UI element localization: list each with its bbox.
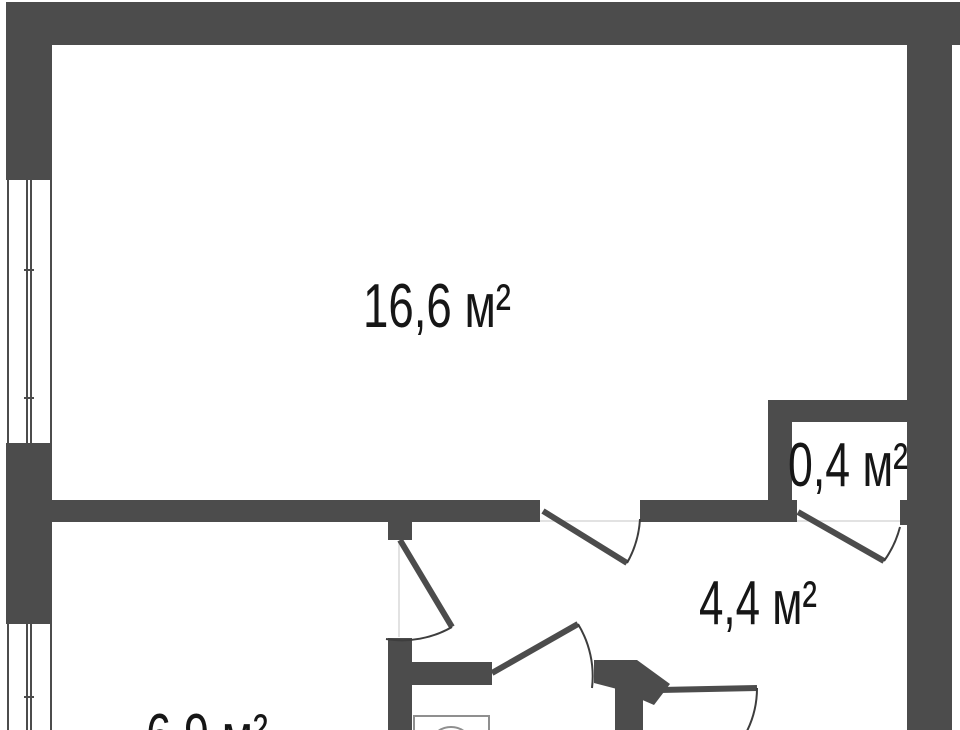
door-leaf-kitchen <box>400 540 452 627</box>
door-swing-living-room <box>627 519 640 563</box>
floor-plan: 16,6 м² 0,4 м² 4,4 м² 6,9 м² <box>0 0 960 730</box>
room-label-hallway: 4,4 м² <box>699 569 817 638</box>
window-living-room <box>6 178 52 445</box>
door-leaf-living-room <box>543 511 627 563</box>
wall-bathroom-wc-divider <box>615 682 643 730</box>
window-kitchen <box>6 622 52 730</box>
interior-walls <box>52 400 907 730</box>
wall-left-pier <box>6 445 52 622</box>
washing-machine-icon <box>414 716 489 730</box>
door-leaf-wc <box>660 688 757 690</box>
door-swing-wc <box>747 688 757 730</box>
door-leaf-storage <box>798 512 884 561</box>
wall-hall-top-left <box>52 500 540 522</box>
wall-left-upper <box>6 45 52 178</box>
wall-bathroom-top <box>412 662 492 685</box>
room-label-storage: 0,4 м² <box>788 431 908 500</box>
wall-right <box>907 45 952 730</box>
door-jamb-kitchen <box>388 522 412 540</box>
floor-plan-canvas: 16,6 м² 0,4 м² 4,4 м² 6,9 м² <box>0 0 960 730</box>
wall-storage-top <box>768 400 907 422</box>
wall-top <box>6 2 960 45</box>
door-swing-bathroom <box>578 624 593 688</box>
room-label-living-room: 16,6 м² <box>363 272 511 341</box>
door-swing-storage <box>884 527 900 561</box>
door-jamb-storage <box>900 500 907 525</box>
door-leaf-bathroom <box>492 624 578 673</box>
wall-hall-top-right <box>640 500 797 522</box>
room-label-kitchen: 6,9 м² <box>146 702 268 730</box>
wall-kitchen-right <box>388 638 412 730</box>
